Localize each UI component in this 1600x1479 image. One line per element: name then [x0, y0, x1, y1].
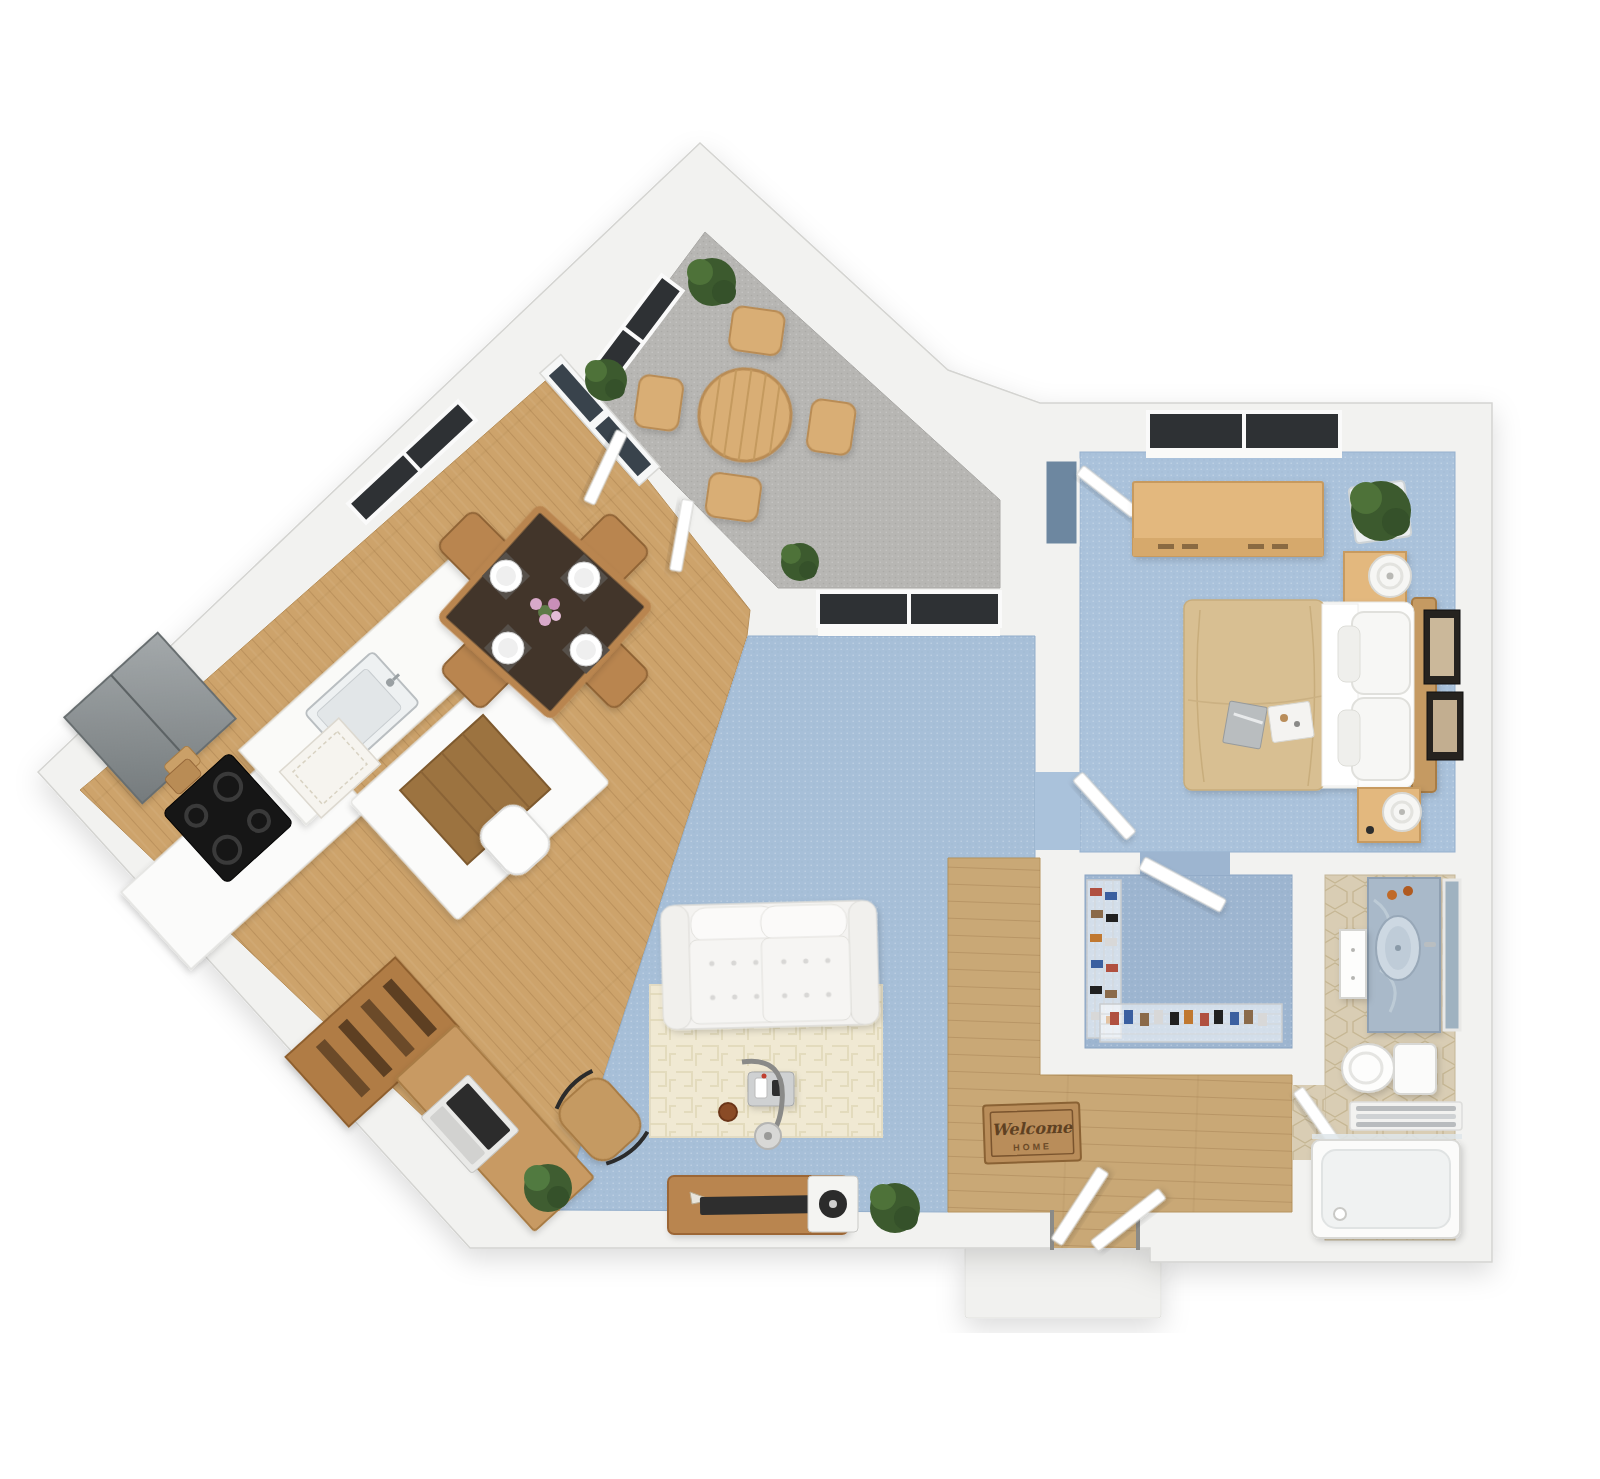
tv-console — [668, 1176, 858, 1234]
tub-drain — [1334, 1208, 1346, 1220]
bathtub — [1312, 1134, 1462, 1238]
toilet-tank — [1394, 1044, 1436, 1094]
towel-rack — [1350, 1102, 1462, 1130]
decor-tray — [1268, 701, 1315, 742]
pillow — [1338, 626, 1360, 682]
floorplan-stage: Welcome HOME — [0, 0, 1600, 1479]
dining-set — [436, 507, 651, 716]
bathroom-cabinet — [1340, 930, 1366, 998]
sofa — [660, 900, 879, 1030]
coffee-cup — [719, 1103, 737, 1121]
welcome-mat: Welcome HOME — [983, 1102, 1081, 1163]
shoe-rack-horizontal — [1100, 1004, 1282, 1042]
desk-plant — [524, 1164, 572, 1212]
bedroom-plant — [1348, 480, 1411, 543]
patio-plant-3 — [781, 543, 819, 581]
faucet — [1424, 942, 1436, 947]
pillow — [1352, 698, 1410, 780]
pillow — [1338, 710, 1360, 766]
bathroom-vanity — [1368, 878, 1440, 1032]
entry-porch — [965, 1246, 1161, 1318]
bathroom-mirror — [1444, 880, 1460, 1030]
mat-text-welcome: Welcome — [991, 1118, 1073, 1140]
duvet — [1184, 600, 1324, 790]
bed — [1184, 598, 1436, 792]
side-table — [748, 1072, 794, 1106]
mat-text-home: HOME — [1013, 1141, 1052, 1152]
patio-plant-2 — [585, 359, 627, 401]
dresser — [1133, 482, 1323, 556]
tv — [700, 1195, 826, 1215]
record-player — [808, 1176, 858, 1232]
magazine — [1223, 701, 1268, 749]
living-plant — [870, 1183, 920, 1233]
living-window — [818, 592, 1000, 636]
floorplan-render: Welcome HOME — [0, 0, 1600, 1479]
nightstand-south — [1358, 788, 1421, 842]
pillow — [1352, 612, 1410, 694]
bedroom-window — [1146, 412, 1342, 458]
